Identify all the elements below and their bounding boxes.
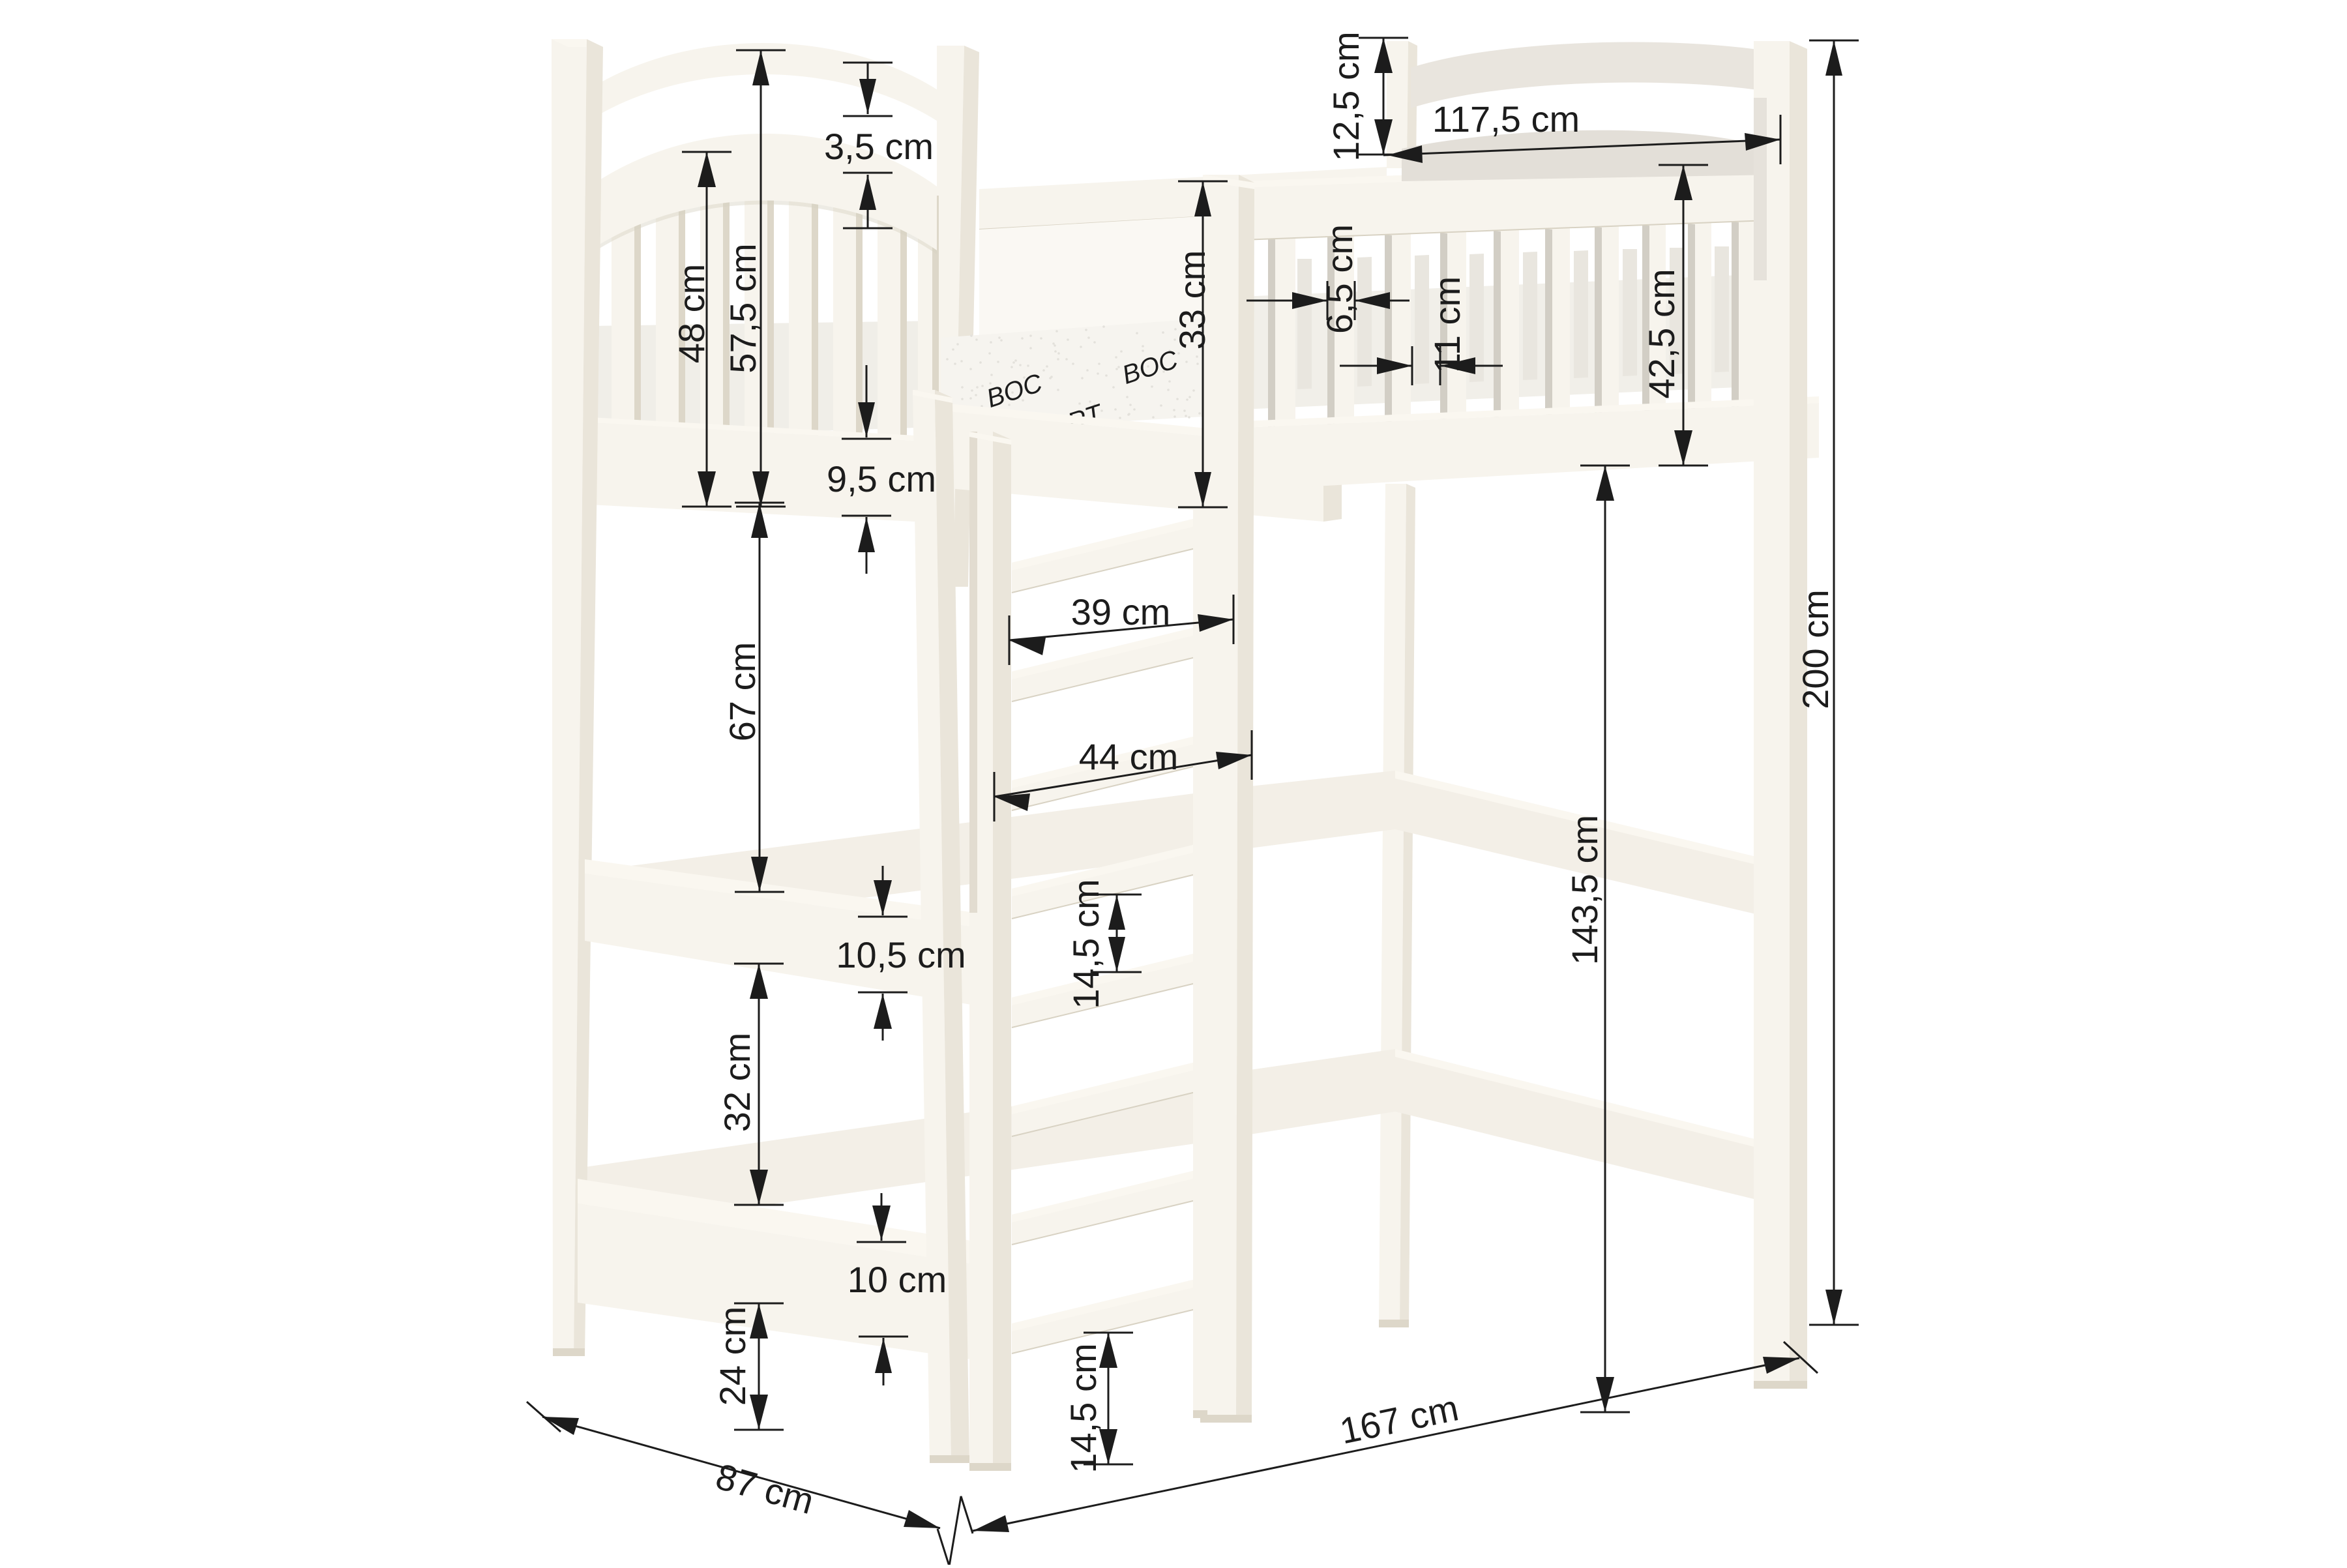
svg-text:48 cm: 48 cm xyxy=(671,264,712,364)
svg-text:33 cm: 33 cm xyxy=(1172,250,1213,350)
svg-text:10,5 cm: 10,5 cm xyxy=(836,934,966,975)
svg-text:10 cm: 10 cm xyxy=(848,1259,947,1300)
svg-text:42,5 cm: 42,5 cm xyxy=(1641,269,1682,398)
svg-text:39 cm: 39 cm xyxy=(1071,591,1171,632)
svg-text:12,5 cm: 12,5 cm xyxy=(1325,31,1366,161)
svg-text:117,5 cm: 117,5 cm xyxy=(1432,98,1580,140)
svg-text:14,5 cm: 14,5 cm xyxy=(1063,1343,1104,1473)
svg-text:14,5 cm: 14,5 cm xyxy=(1065,879,1106,1009)
svg-text:44 cm: 44 cm xyxy=(1079,736,1179,777)
svg-text:32 cm: 32 cm xyxy=(716,1033,758,1132)
svg-text:200 cm: 200 cm xyxy=(1795,589,1836,709)
svg-text:9,5 cm: 9,5 cm xyxy=(827,458,936,499)
svg-text:143,5 cm: 143,5 cm xyxy=(1564,815,1605,965)
svg-text:24 cm: 24 cm xyxy=(712,1307,753,1406)
svg-text:6,5 cm: 6,5 cm xyxy=(1319,224,1360,334)
svg-text:11 cm: 11 cm xyxy=(1426,276,1468,373)
svg-text:3,5 cm: 3,5 cm xyxy=(824,126,934,167)
svg-text:67 cm: 67 cm xyxy=(722,642,763,742)
svg-text:57,5 cm: 57,5 cm xyxy=(722,243,763,373)
